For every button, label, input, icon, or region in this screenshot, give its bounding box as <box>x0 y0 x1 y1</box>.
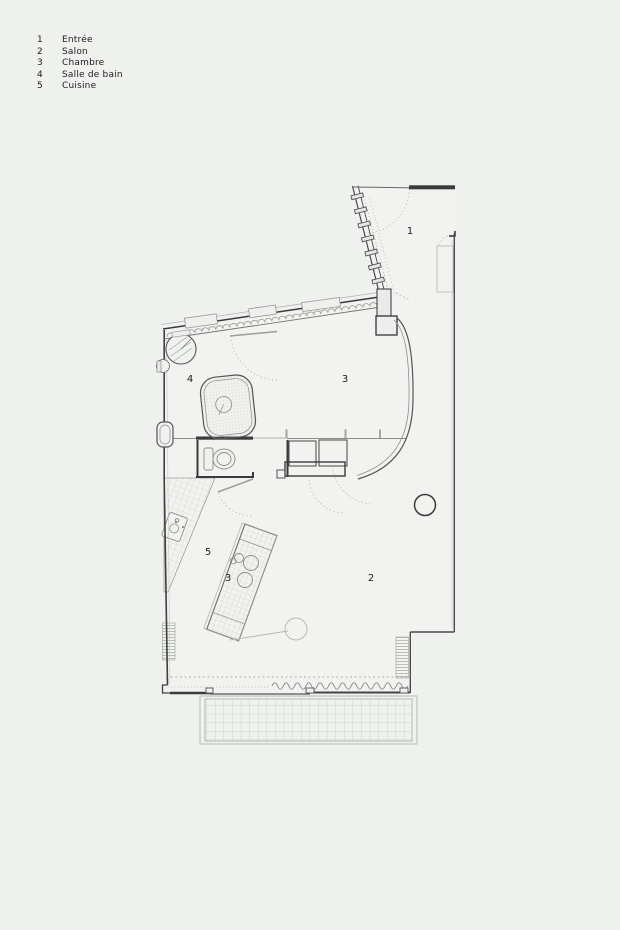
room-label-chambre: 3 <box>342 374 348 385</box>
room-label-entree: 1 <box>407 226 413 237</box>
terrace <box>200 696 417 744</box>
room-label-salon: 2 <box>368 573 374 584</box>
toilet <box>204 448 235 470</box>
wall-fixture <box>157 360 170 373</box>
shower-tub <box>199 373 257 440</box>
floor-plan-page: 1 Entrée 2 Salon 3 Chambre 4 Salle de ba… <box>0 0 620 930</box>
radiator-left <box>163 623 176 660</box>
entry-closet <box>437 246 453 292</box>
room-label-salle-de-bain: 4 <box>187 374 193 385</box>
column-circle <box>415 495 436 516</box>
room-label-island: 3 <box>225 573 231 584</box>
floor-plan-svg: 1 3 4 5 3 2 <box>0 0 620 930</box>
room-label-cuisine: 5 <box>205 547 211 558</box>
radiator-right <box>396 637 409 678</box>
hand-basin <box>157 422 173 447</box>
